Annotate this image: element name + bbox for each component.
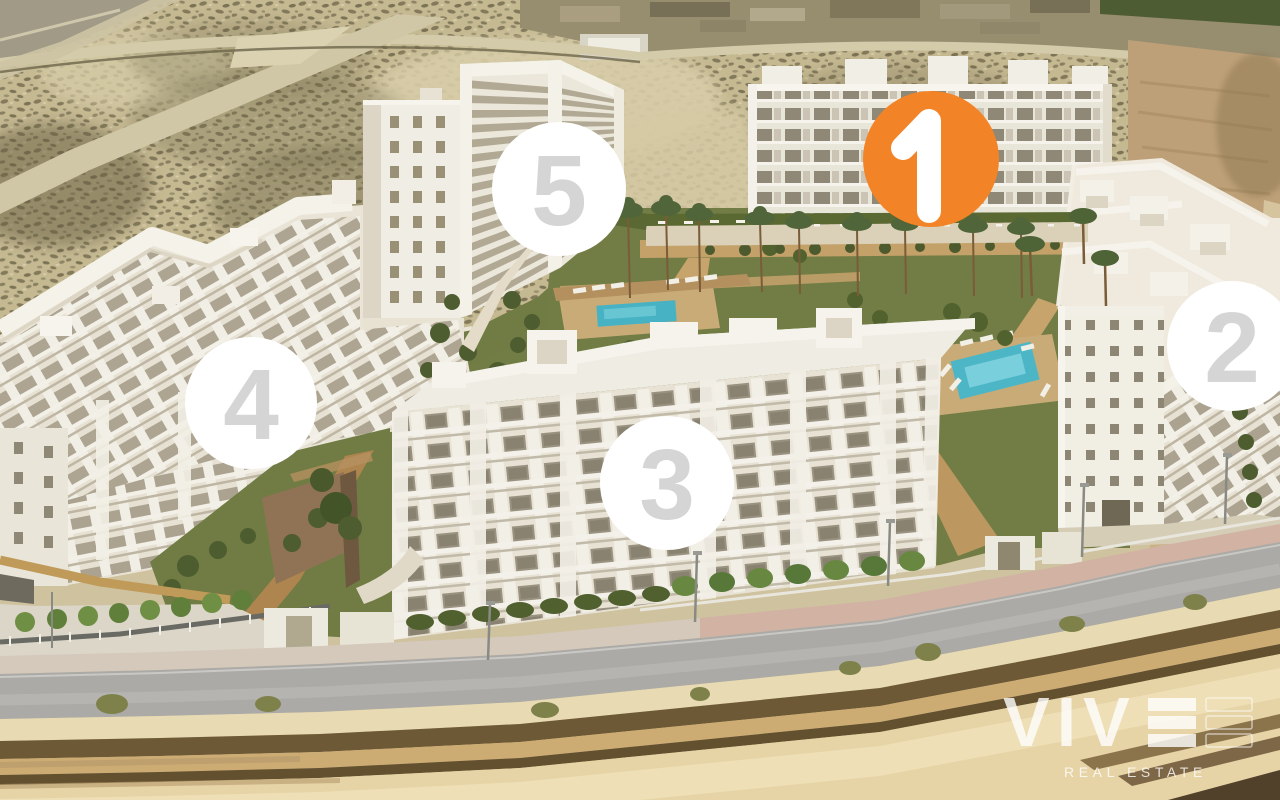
svg-text:5: 5 <box>531 135 587 247</box>
svg-text:4: 4 <box>223 349 279 461</box>
svg-text:3: 3 <box>639 429 695 541</box>
svg-text:REAL ESTATE: REAL ESTATE <box>1064 764 1207 780</box>
svg-text:2: 2 <box>1204 292 1260 404</box>
svg-text:VIV: VIV <box>1003 683 1137 761</box>
